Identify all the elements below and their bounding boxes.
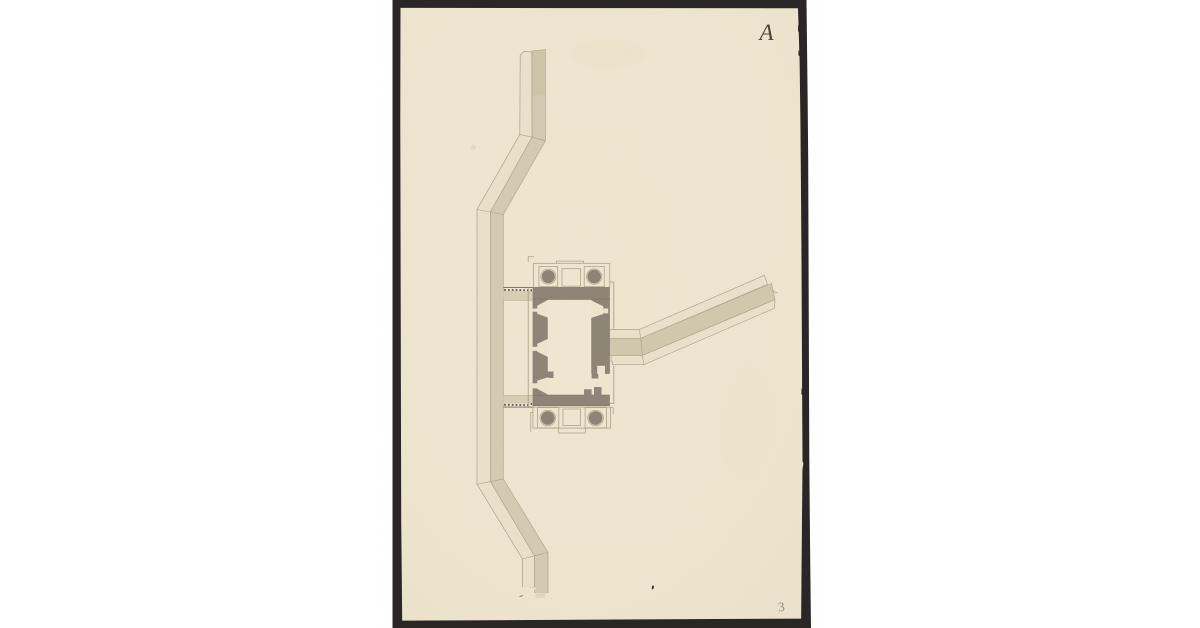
svg-text:A: A bbox=[757, 20, 774, 45]
